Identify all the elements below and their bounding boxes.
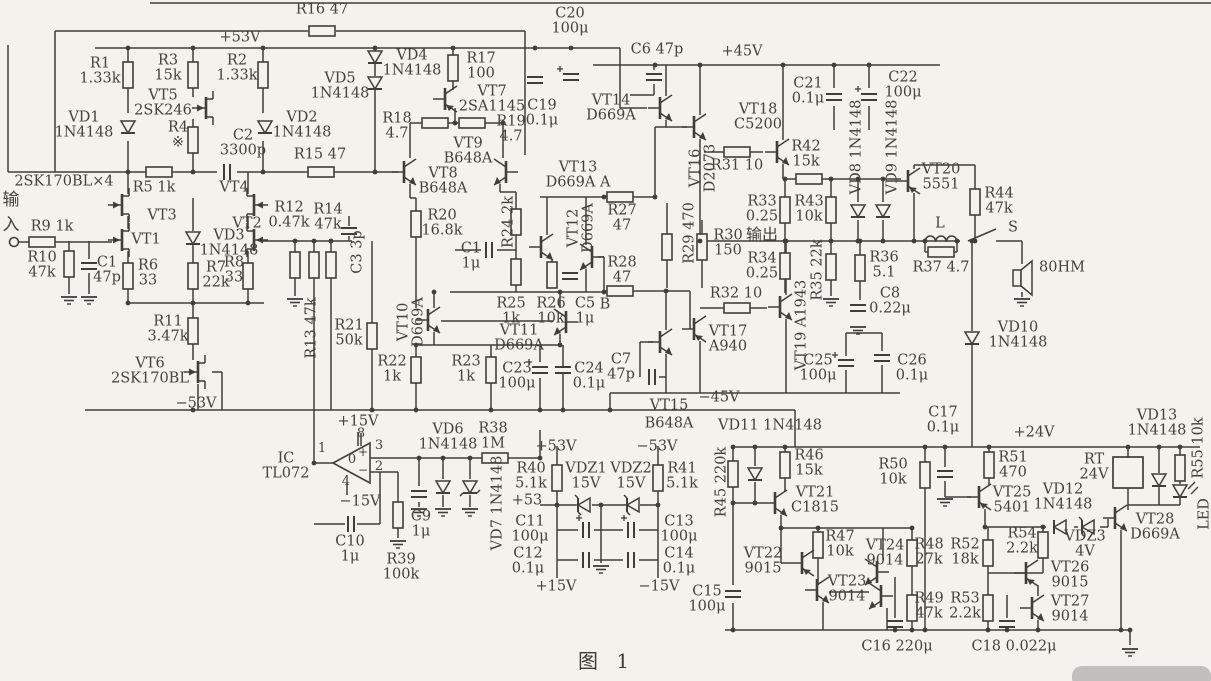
component-label: C25100μ xyxy=(799,353,836,384)
transistor-symbol xyxy=(660,329,672,337)
component-label: VD11 1N4148 xyxy=(717,418,822,434)
transistor-symbol xyxy=(494,159,506,167)
component-label: R5 1k xyxy=(133,180,176,196)
component-label: R113.47k xyxy=(147,314,188,345)
transistor-symbol xyxy=(445,86,457,94)
component-label: R4710k xyxy=(825,529,854,560)
junction-dot xyxy=(1157,445,1162,450)
component-label: 2 xyxy=(375,459,383,474)
junction-dot xyxy=(923,445,928,450)
junction-dot xyxy=(489,408,494,413)
zener-diode-symbol xyxy=(575,495,578,498)
component-label: R532.2k xyxy=(949,591,981,622)
component-label: VT28D669A xyxy=(1130,512,1180,543)
component-label: C16 220μ xyxy=(861,639,932,655)
component-label: L xyxy=(935,216,945,232)
transistor-symbol xyxy=(777,139,789,147)
resistor-symbol xyxy=(653,465,663,491)
diode-symbol xyxy=(1152,474,1166,486)
resistor-symbol xyxy=(607,192,633,202)
resistor-symbol xyxy=(724,303,750,313)
component-label: R833 xyxy=(224,255,244,286)
resistor-symbol xyxy=(188,62,198,88)
component-label: R32 10 xyxy=(710,286,762,302)
component-label: R29 470 xyxy=(682,202,698,264)
component-label: VD8 1N4148 xyxy=(849,100,865,196)
component-label: VT229015 xyxy=(743,546,783,577)
component-label: R24 2k xyxy=(501,196,517,248)
junction-dot xyxy=(558,343,563,348)
junction-dot xyxy=(417,456,422,461)
component-label: 2SK170BL×4 xyxy=(14,174,113,190)
junction-dot xyxy=(1005,628,1010,633)
component-label: R4310k xyxy=(794,194,823,225)
component-label: VDZ115V xyxy=(564,461,606,492)
junction-dot xyxy=(698,63,703,68)
component-label: R2016.8k xyxy=(421,208,462,239)
component-label: R2847 xyxy=(607,255,636,286)
junction-dot xyxy=(753,445,758,450)
diode-symbol xyxy=(748,468,762,480)
component-label: R2610k xyxy=(536,296,565,327)
junction-dot xyxy=(783,177,788,182)
component-label: LED xyxy=(1197,498,1211,530)
component-label: C18 0.022μ xyxy=(971,639,1056,655)
led-icon xyxy=(1188,482,1195,489)
junction-dot xyxy=(561,408,566,413)
junction-dot xyxy=(329,239,334,244)
resistor-symbol xyxy=(697,234,707,260)
component-label: C51μ xyxy=(575,296,595,327)
component-label: VT21C1815 xyxy=(791,485,839,516)
component-label: R184.7 xyxy=(382,111,411,142)
resistor-symbol xyxy=(970,189,980,215)
component-label: VT8B648A xyxy=(419,166,468,197)
junction-dot xyxy=(432,290,437,295)
transistor-symbol xyxy=(189,369,196,376)
resistor-symbol xyxy=(411,211,421,237)
diode-symbol xyxy=(258,121,272,133)
component-label: R30150 xyxy=(713,228,742,259)
component-label: C240.1μ xyxy=(573,361,605,392)
transistor-symbol xyxy=(979,484,991,492)
resistor-symbol xyxy=(123,62,133,88)
junction-dot xyxy=(312,239,317,244)
zener-diode-symbol xyxy=(1079,517,1082,520)
zener-diode-symbol xyxy=(627,498,639,512)
component-label: − xyxy=(358,463,368,477)
junction-dot xyxy=(261,170,266,175)
component-label: R4447k xyxy=(984,186,1013,217)
component-label: 4 xyxy=(342,474,350,489)
component-label: C15100μ xyxy=(688,584,725,615)
component-label: ICTL072 xyxy=(263,451,310,482)
watermark-bar xyxy=(1072,666,1211,681)
component-label: R17100 xyxy=(466,51,495,82)
component-label: R35 22k xyxy=(810,239,826,300)
junction-dot xyxy=(126,170,131,175)
junction-dot xyxy=(453,121,458,126)
component-label: VT239014 xyxy=(827,574,867,605)
component-label: 入 xyxy=(3,215,20,235)
component-label: −53V xyxy=(636,439,678,455)
zener-diode-symbol xyxy=(460,493,463,496)
junction-dot xyxy=(664,289,669,294)
component-label: VT62SK170BL xyxy=(111,356,189,387)
junction-dot xyxy=(943,445,948,450)
component-label: C6 47p xyxy=(631,42,684,58)
relay-symbol xyxy=(1113,457,1143,488)
component-label: VD51N4148 xyxy=(311,71,370,102)
junction-dot xyxy=(698,239,703,244)
zener-diode-symbol xyxy=(578,498,590,512)
component-label: B648A xyxy=(645,416,694,432)
junction-dot xyxy=(653,63,658,68)
resistor-symbol xyxy=(826,254,836,280)
component-label: VT4 xyxy=(218,180,248,196)
transistor-symbol xyxy=(660,95,672,103)
junction-dot xyxy=(441,456,446,461)
junction-dot xyxy=(881,239,886,244)
component-label: R39100k xyxy=(383,552,420,583)
component-label: R1447k xyxy=(313,202,342,233)
transistor-symbol xyxy=(1115,505,1127,513)
component-label: + xyxy=(358,445,368,459)
diode-symbol xyxy=(965,332,979,344)
component-label: VT249014 xyxy=(865,538,905,569)
junction-dot xyxy=(555,503,560,508)
junction-dot xyxy=(731,628,736,633)
component-label: C20100μ xyxy=(551,6,588,37)
component-label: +53V xyxy=(219,30,261,46)
zener-diode-symbol xyxy=(477,490,480,493)
junction-dot xyxy=(731,445,736,450)
component-label: R365.1 xyxy=(869,250,898,281)
component-label: VT3 xyxy=(146,208,176,224)
junction-dot xyxy=(373,170,378,175)
junction-dot xyxy=(538,408,543,413)
resistor-symbol xyxy=(258,62,268,88)
component-label: R4※ xyxy=(168,120,188,151)
junction-dot xyxy=(653,195,658,200)
led-icon xyxy=(1191,487,1198,494)
junction-dot xyxy=(987,445,992,450)
speaker-icon xyxy=(1013,270,1021,286)
transistor-symbol xyxy=(694,316,706,324)
junction-dot xyxy=(893,628,898,633)
junction-dot xyxy=(451,46,456,51)
junction-dot xyxy=(373,46,378,51)
component-label: C22100μ xyxy=(884,70,921,101)
component-label: C11100μ xyxy=(511,514,548,545)
component-label: R340.25 xyxy=(746,251,778,282)
resistor-symbol xyxy=(780,253,790,279)
component-label: VT10D669A xyxy=(396,297,427,347)
speaker-icon xyxy=(1021,261,1032,295)
junction-dot xyxy=(370,408,375,413)
junction-dot xyxy=(558,290,563,295)
component-label: C210.1μ xyxy=(792,76,824,107)
component-label: C190.1μ xyxy=(526,98,558,129)
zener-diode-symbol xyxy=(627,512,630,515)
transistor-symbol xyxy=(694,114,706,122)
component-label: VD7 1N4148 xyxy=(490,456,506,552)
transistor-symbol xyxy=(869,583,881,591)
component-label: S xyxy=(1008,220,1018,236)
component-label: R5010k xyxy=(878,457,907,488)
junction-dot xyxy=(1128,628,1133,633)
resistor-symbol xyxy=(983,540,993,566)
junction-dot xyxy=(569,46,574,51)
junction-dot xyxy=(781,63,786,68)
resistor-symbol xyxy=(448,55,458,81)
resistor-symbol xyxy=(309,26,335,36)
resistor-symbol xyxy=(547,262,557,288)
component-label: VT14D669A xyxy=(586,93,636,124)
diode-symbol xyxy=(436,481,450,493)
component-label: C170.1μ xyxy=(927,405,959,436)
component-label: VD9 1N4148 xyxy=(885,100,901,196)
transistor-symbol xyxy=(113,202,120,209)
resistor-symbol xyxy=(552,465,562,491)
junction-dot xyxy=(191,170,196,175)
resistor-symbol xyxy=(1038,532,1048,558)
resistor-symbol xyxy=(123,263,133,289)
resistor-symbol xyxy=(928,247,954,257)
component-label: VT18C5200 xyxy=(734,102,782,133)
component-label: 3 xyxy=(375,438,383,453)
junction-dot xyxy=(1036,628,1041,633)
diode-symbol xyxy=(186,232,200,244)
schematic-page: R16 47+53VC20100μR11.33kR315kR21.33kVD41… xyxy=(0,0,1211,681)
junction-dot xyxy=(533,46,538,51)
junction-dot xyxy=(608,408,613,413)
transistor-symbol xyxy=(113,237,120,244)
component-label: C80.22μ xyxy=(869,286,911,317)
component-label: +24V xyxy=(1013,425,1055,441)
junction-dot xyxy=(779,526,784,531)
resistor-symbol xyxy=(393,502,403,528)
junction-dot xyxy=(246,301,251,306)
junction-dot xyxy=(829,239,834,244)
junction-dot xyxy=(986,628,991,633)
junction-dot xyxy=(1041,525,1046,530)
transistor-symbol xyxy=(1026,560,1038,568)
component-label: VT255401 xyxy=(992,485,1032,516)
junction-dot xyxy=(191,46,196,51)
transistor-symbol xyxy=(404,159,416,167)
figure-caption: 图 1 xyxy=(578,645,635,674)
component-label: VDZ34V xyxy=(1063,529,1105,560)
component-label: −53V xyxy=(175,396,217,412)
junction-dot xyxy=(1119,628,1124,633)
diode-symbol xyxy=(368,77,382,89)
junction-dot xyxy=(910,628,915,633)
junction-dot xyxy=(923,628,928,633)
component-label: VT11D669A xyxy=(494,323,544,354)
component-label: C140.1μ xyxy=(663,546,695,577)
component-label: VT17A940 xyxy=(708,324,748,355)
component-label: R120.47k xyxy=(268,200,309,231)
led-icon xyxy=(1173,485,1187,497)
resistor-symbol xyxy=(243,263,253,289)
component-label: +45V xyxy=(721,44,763,60)
component-label: R415.1k xyxy=(666,461,698,492)
diode-symbol xyxy=(121,121,135,133)
resistor-symbol xyxy=(188,318,198,344)
component-label: VD11N4148 xyxy=(55,110,114,141)
transistor-symbol xyxy=(541,234,553,242)
transistor-symbol xyxy=(775,490,787,498)
component-label: 8 xyxy=(357,426,365,441)
component-label: R381M xyxy=(478,421,507,452)
component-label: VD101N4148 xyxy=(989,320,1048,351)
component-label: 0 xyxy=(348,452,356,467)
resistor-symbol xyxy=(29,237,55,247)
component-label: R633 xyxy=(138,258,158,289)
component-label: VT15 xyxy=(649,398,689,414)
transistor-symbol xyxy=(256,202,263,209)
component-label: +53V xyxy=(535,439,577,455)
component-label: C260.1μ xyxy=(896,353,928,384)
resistor-symbol xyxy=(780,197,790,223)
junction-dot xyxy=(858,239,863,244)
junction-dot xyxy=(191,301,196,306)
resistor-symbol xyxy=(855,255,865,281)
component-label: R31 10 xyxy=(711,158,763,174)
resistor-symbol xyxy=(146,167,172,177)
junction-dot xyxy=(126,46,131,51)
transistor-symbol xyxy=(197,105,204,112)
junction-dot xyxy=(753,501,758,506)
junction-dot xyxy=(784,239,789,244)
resistor-symbol xyxy=(326,252,336,278)
component-label: R13 47k xyxy=(304,297,320,358)
resistor-symbol xyxy=(780,452,790,478)
resistor-symbol xyxy=(308,167,334,177)
component-label: R330.25 xyxy=(746,194,778,225)
component-label: RT24V xyxy=(1080,452,1109,483)
component-label: C147p xyxy=(93,255,121,286)
component-label: −45V xyxy=(698,390,740,406)
junction-dot xyxy=(731,501,736,506)
component-label: VD21N4148 xyxy=(273,110,332,141)
diode-symbol xyxy=(368,51,382,63)
resistor-symbol xyxy=(984,452,994,478)
transistor-symbol xyxy=(780,294,792,302)
junction-dot xyxy=(126,301,131,306)
component-label: R4827k xyxy=(914,537,943,568)
junction-dot xyxy=(867,63,872,68)
component-label: VT9B648A xyxy=(444,136,493,167)
component-label: VD61N4148 xyxy=(419,422,478,453)
resistor-symbol xyxy=(309,252,319,278)
junction-dot xyxy=(656,503,661,508)
resistor-symbol xyxy=(724,147,750,157)
zener-diode-symbol xyxy=(624,495,627,498)
component-label: VT279014 xyxy=(1050,594,1090,625)
junction-dot xyxy=(1178,445,1183,450)
component-label: C101μ xyxy=(335,534,365,565)
component-label: R231k xyxy=(451,354,480,385)
component-label: VD41N4148 xyxy=(383,48,442,79)
component-label: R2150k xyxy=(334,318,363,349)
resistor-symbol xyxy=(290,252,300,278)
resistor-symbol xyxy=(607,286,633,296)
component-label: R15 47 xyxy=(294,147,346,163)
component-label: C13100μ xyxy=(660,514,697,545)
component-label: B xyxy=(600,297,611,313)
resistor-symbol xyxy=(188,127,198,153)
resistor-symbol xyxy=(826,197,836,223)
component-label: VT13D669A A xyxy=(546,160,611,191)
component-label: VT269015 xyxy=(1050,560,1090,591)
component-label: R4615k xyxy=(794,448,823,479)
component-label: C91μ xyxy=(411,509,431,540)
component-label: C120.1μ xyxy=(512,546,544,577)
component-label: R11.33k xyxy=(79,56,120,87)
component-label: R5218k xyxy=(950,537,979,568)
junction-dot xyxy=(414,408,419,413)
transistor-symbol xyxy=(1032,595,1044,603)
transistor-symbol xyxy=(428,307,440,315)
input-terminal xyxy=(10,238,19,247)
component-label: R194.7 xyxy=(496,114,525,145)
junction-dot xyxy=(599,503,604,508)
resistor-symbol xyxy=(459,118,485,128)
component-label: +15V xyxy=(535,579,577,595)
component-label: R9 1k xyxy=(31,219,74,235)
resistor-symbol xyxy=(813,532,823,558)
junction-dot xyxy=(910,526,915,531)
component-label: VT52SK246 xyxy=(134,88,192,119)
component-label: C3 3p xyxy=(350,230,366,273)
resistor-symbol xyxy=(486,357,496,383)
junction-dot xyxy=(293,239,298,244)
component-label: VD131N4148 xyxy=(1128,408,1187,439)
component-label: R51470 xyxy=(998,450,1027,481)
junction-dot xyxy=(261,46,266,51)
component-label: −15V xyxy=(339,494,381,510)
component-label: VT72SA1145 xyxy=(459,84,526,115)
resistor-symbol xyxy=(64,251,74,277)
component-label: 80HM xyxy=(1039,260,1085,276)
resistor-symbol xyxy=(511,259,521,285)
resistor-symbol xyxy=(411,357,421,383)
zener-diode-symbol xyxy=(463,481,477,493)
component-label: R4947k xyxy=(914,591,943,622)
component-label: R221k xyxy=(377,354,406,385)
junction-dot xyxy=(602,290,607,295)
diode-symbol xyxy=(851,205,865,217)
component-label: C23100μ xyxy=(498,361,535,392)
resistor-symbol xyxy=(796,174,822,184)
zener-diode-symbol xyxy=(578,512,581,515)
component-label: VT205551 xyxy=(921,162,961,193)
component-label: −15V xyxy=(638,579,680,595)
transistor-symbol xyxy=(908,168,920,176)
component-label: R1047k xyxy=(27,250,56,281)
component-label: 输出 xyxy=(746,225,778,244)
component-label: C11μ xyxy=(461,241,481,272)
component-label: C747p xyxy=(607,352,635,383)
component-label: R4215k xyxy=(791,139,820,170)
junction-dot xyxy=(1126,445,1131,450)
component-label: 输 xyxy=(3,190,20,210)
resistor-symbol xyxy=(1175,455,1185,481)
resistor-symbol xyxy=(188,263,198,289)
resistor-symbol xyxy=(920,462,930,488)
